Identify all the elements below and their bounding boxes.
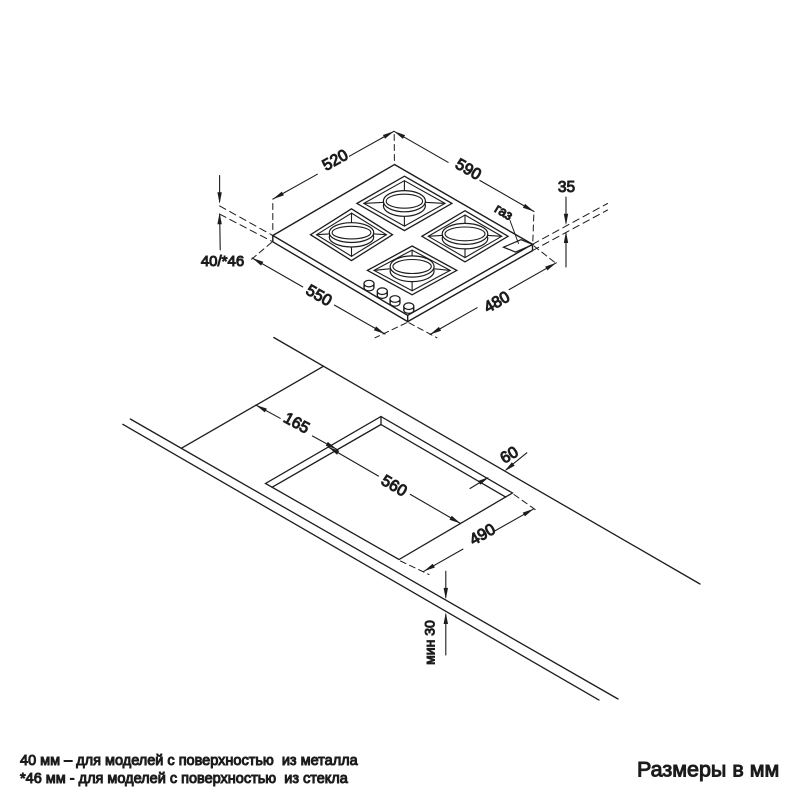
svg-text:490: 490 — [467, 521, 499, 549]
svg-text:40 мм – для моделей с поверхно: 40 мм – для моделей с поверхностью из ме… — [20, 753, 359, 769]
svg-text:520: 520 — [320, 147, 352, 175]
svg-text:560: 560 — [378, 472, 410, 500]
svg-text:165: 165 — [281, 410, 313, 438]
svg-text:мин 30: мин 30 — [422, 620, 438, 665]
svg-text:40/*46: 40/*46 — [201, 253, 244, 270]
svg-text:60: 60 — [497, 444, 521, 468]
svg-text:*46 мм - для моделей с поверхн: *46 мм - для моделей с поверхностью из с… — [20, 771, 349, 787]
svg-text:Размеры в мм: Размеры в мм — [637, 758, 779, 782]
svg-text:550: 550 — [303, 282, 335, 310]
svg-text:35: 35 — [558, 179, 575, 196]
svg-text:480: 480 — [481, 289, 513, 317]
svg-text:газ: газ — [492, 201, 515, 223]
svg-text:590: 590 — [452, 156, 484, 184]
